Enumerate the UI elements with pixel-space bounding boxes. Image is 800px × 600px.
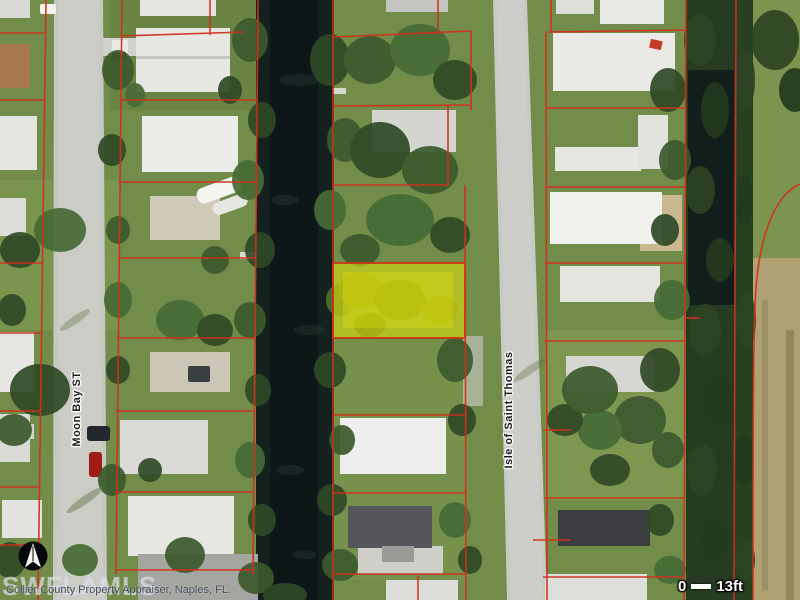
- aerial-imagery-canvas[interactable]: [0, 0, 800, 600]
- scale-start-value: 0: [678, 578, 686, 595]
- street-label-moon-bay-st: Moon Bay ST: [71, 371, 83, 446]
- north-arrow-icon: [17, 539, 49, 573]
- highlighted-parcel[interactable]: [333, 263, 465, 338]
- copyright-attribution: Collier County Property Appraiser, Naple…: [6, 584, 231, 596]
- street-label-isle-of-saint-thomas: Isle of Saint Thomas: [503, 352, 515, 469]
- scale-bar: 0 13ft: [678, 578, 743, 595]
- scale-bar-segment: [691, 584, 711, 589]
- aerial-map-view[interactable]: Moon Bay ST Isle of Saint Thomas 0 13ft …: [0, 0, 800, 600]
- scale-distance-label: 13ft: [716, 578, 743, 595]
